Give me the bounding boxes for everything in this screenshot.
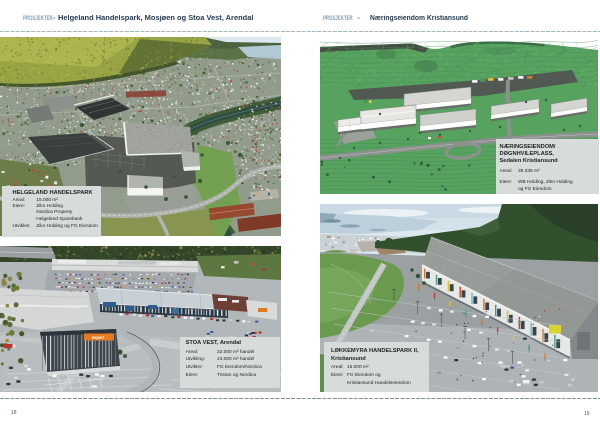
svg-text:expert: expert [92,335,105,340]
